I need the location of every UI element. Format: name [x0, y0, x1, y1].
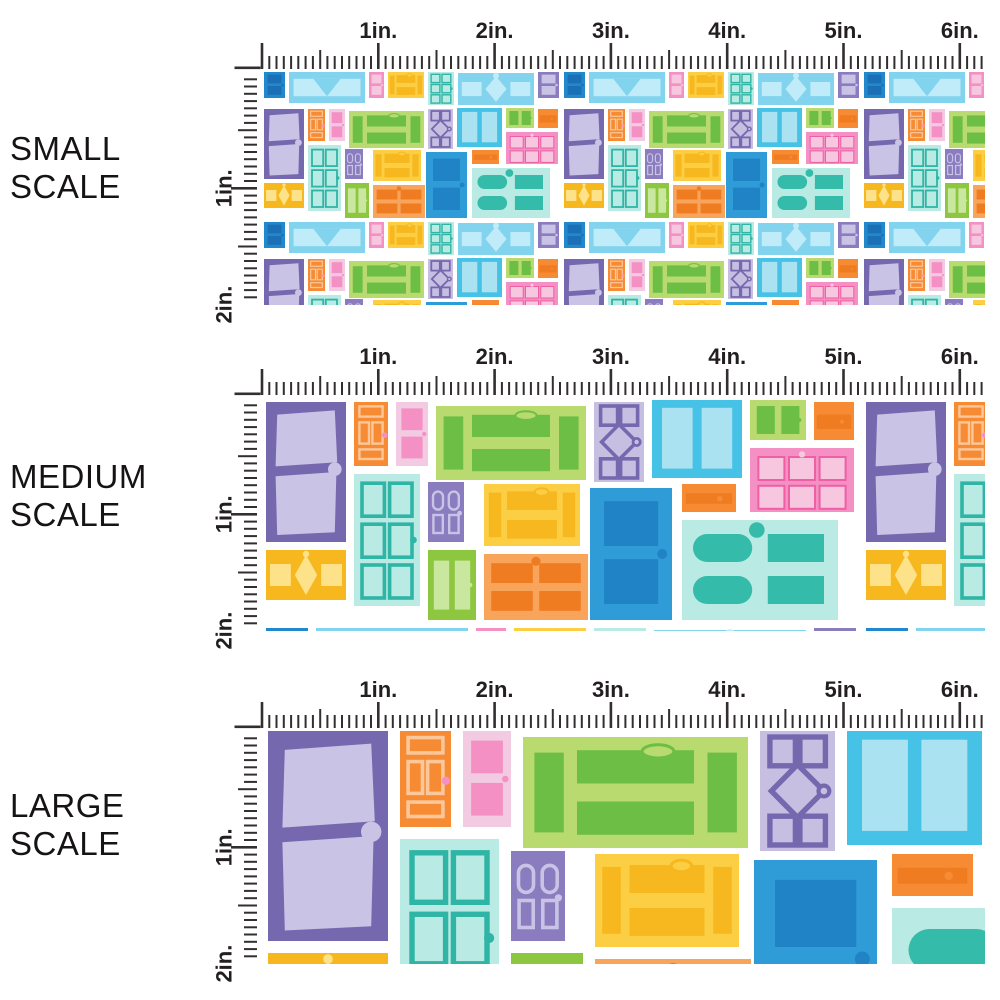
top-ruler-inch-label: 6in. [941, 344, 979, 369]
top-ruler-inch-label: 5in. [825, 344, 863, 369]
top-ruler-inch-label: 5in. [825, 18, 863, 43]
top-ruler-medium: 1in.2in.3in.4in.5in.6in. [235, 344, 983, 395]
side-ruler-medium: 1in.2in. [212, 404, 258, 649]
swatch-scene: 1in.2in.3in.4in.5in.6in.1in.2in.1in.2in.… [0, 0, 1000, 1000]
side-ruler-inch-label: 1in. [212, 495, 237, 533]
top-ruler-inch-label: 1in. [359, 677, 397, 702]
top-ruler-inch-label: 5in. [825, 677, 863, 702]
fabric-swatch-small [262, 72, 985, 305]
top-ruler-inch-label: 2in. [476, 677, 514, 702]
side-ruler-inch-label: 1in. [212, 828, 237, 866]
fabric-swatch-large [262, 731, 985, 964]
top-ruler-inch-label: 6in. [941, 677, 979, 702]
top-ruler-inch-label: 2in. [476, 344, 514, 369]
side-ruler-inch-label: 1in. [212, 169, 237, 207]
top-ruler-inch-label: 6in. [941, 18, 979, 43]
top-ruler-inch-label: 4in. [708, 344, 746, 369]
fabric-scale-comparison: SMALL SCALE MEDIUM SCALE LARGE SCALE 1in… [0, 0, 1000, 1000]
top-ruler-large: 1in.2in.3in.4in.5in.6in. [235, 677, 983, 728]
side-ruler-inch-label: 2in. [212, 945, 237, 983]
fabric-swatch-medium [262, 398, 985, 631]
top-ruler-inch-label: 2in. [476, 18, 514, 43]
side-ruler-inch-label: 2in. [212, 286, 237, 324]
top-ruler-inch-label: 3in. [592, 677, 630, 702]
top-ruler-small: 1in.2in.3in.4in.5in.6in. [235, 18, 983, 69]
side-ruler-inch-label: 2in. [212, 612, 237, 650]
top-ruler-inch-label: 1in. [359, 18, 397, 43]
top-ruler-inch-label: 3in. [592, 18, 630, 43]
side-ruler-small: 1in.2in. [212, 78, 258, 323]
side-ruler-large: 1in.2in. [212, 737, 258, 982]
top-ruler-inch-label: 1in. [359, 344, 397, 369]
top-ruler-inch-label: 4in. [708, 18, 746, 43]
top-ruler-inch-label: 4in. [708, 677, 746, 702]
top-ruler-inch-label: 3in. [592, 344, 630, 369]
